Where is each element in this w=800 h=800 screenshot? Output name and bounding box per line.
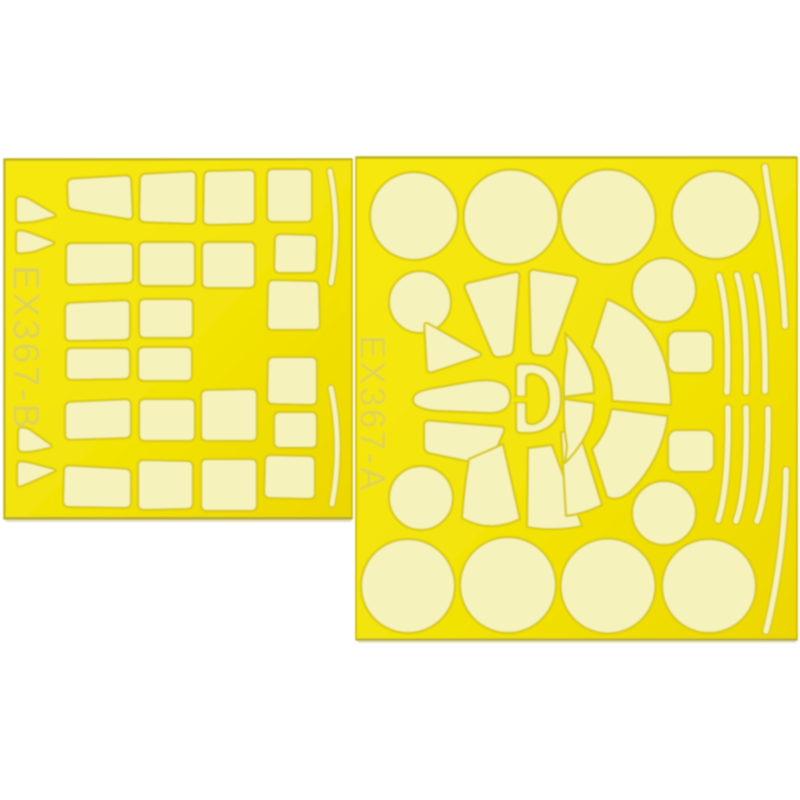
svg-text:EX367-B: EX367-B bbox=[6, 265, 47, 431]
svg-text:EX367-A: EX367-A bbox=[353, 335, 392, 493]
